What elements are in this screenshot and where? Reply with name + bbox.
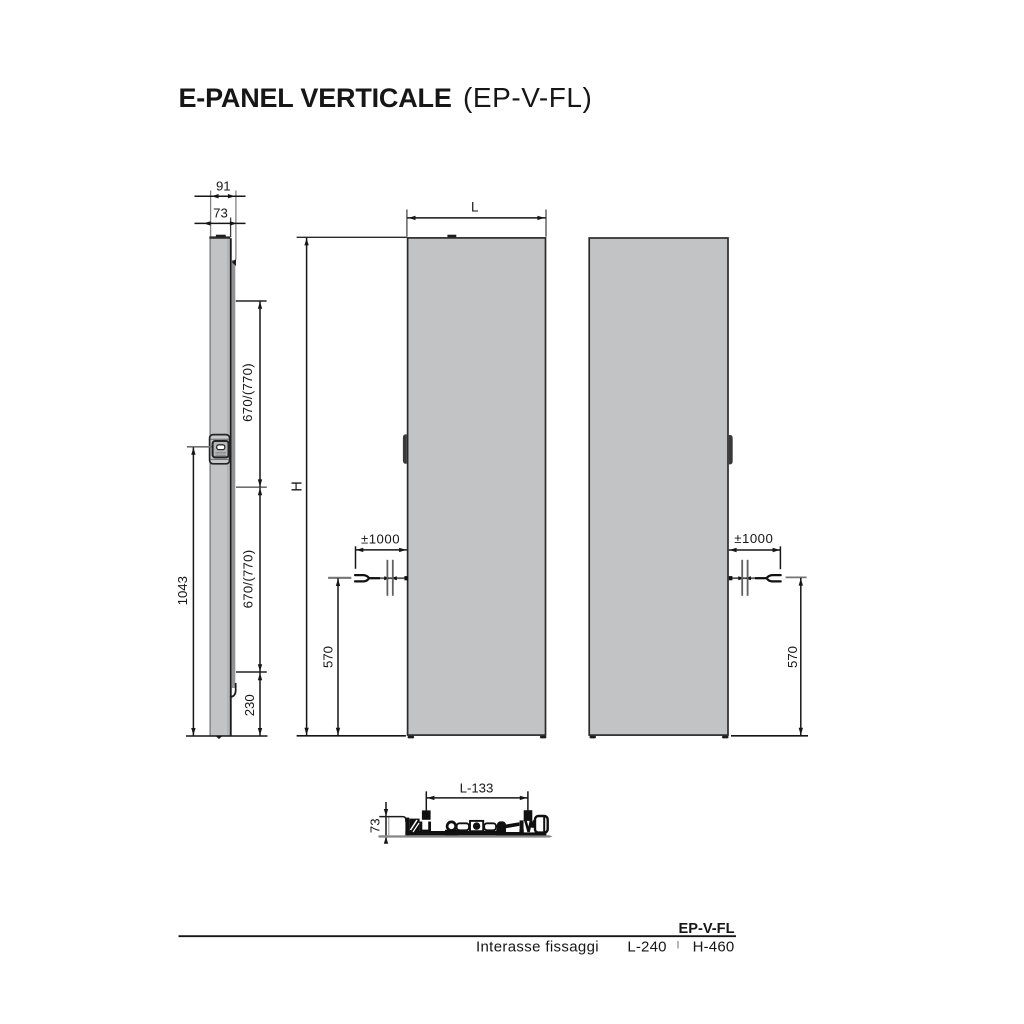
svg-text:73: 73 — [368, 818, 383, 833]
svg-text:EP-V-FL: EP-V-FL — [679, 921, 735, 937]
svg-text:±1000: ±1000 — [734, 531, 773, 546]
svg-text:1043: 1043 — [175, 576, 190, 605]
svg-text:73: 73 — [213, 205, 228, 220]
svg-text:570: 570 — [321, 646, 336, 668]
svg-text:L-240: L-240 — [627, 938, 666, 955]
svg-text:±1000: ±1000 — [361, 531, 400, 546]
svg-text:230: 230 — [242, 694, 257, 716]
svg-text:670/(770): 670/(770) — [241, 550, 256, 609]
svg-text:Interasse fissaggi: Interasse fissaggi — [476, 938, 599, 955]
svg-text:E-PANEL VERTICALE: E-PANEL VERTICALE — [179, 83, 452, 113]
svg-text:570: 570 — [785, 646, 800, 668]
svg-text:H-460: H-460 — [693, 938, 735, 955]
svg-text:670/(770): 670/(770) — [240, 363, 255, 422]
svg-text:(EP-V-FL): (EP-V-FL) — [463, 82, 592, 113]
svg-text:L-133: L-133 — [460, 780, 494, 795]
svg-text:91: 91 — [216, 179, 231, 194]
svg-text:H: H — [289, 481, 305, 491]
svg-text:L: L — [471, 200, 479, 215]
